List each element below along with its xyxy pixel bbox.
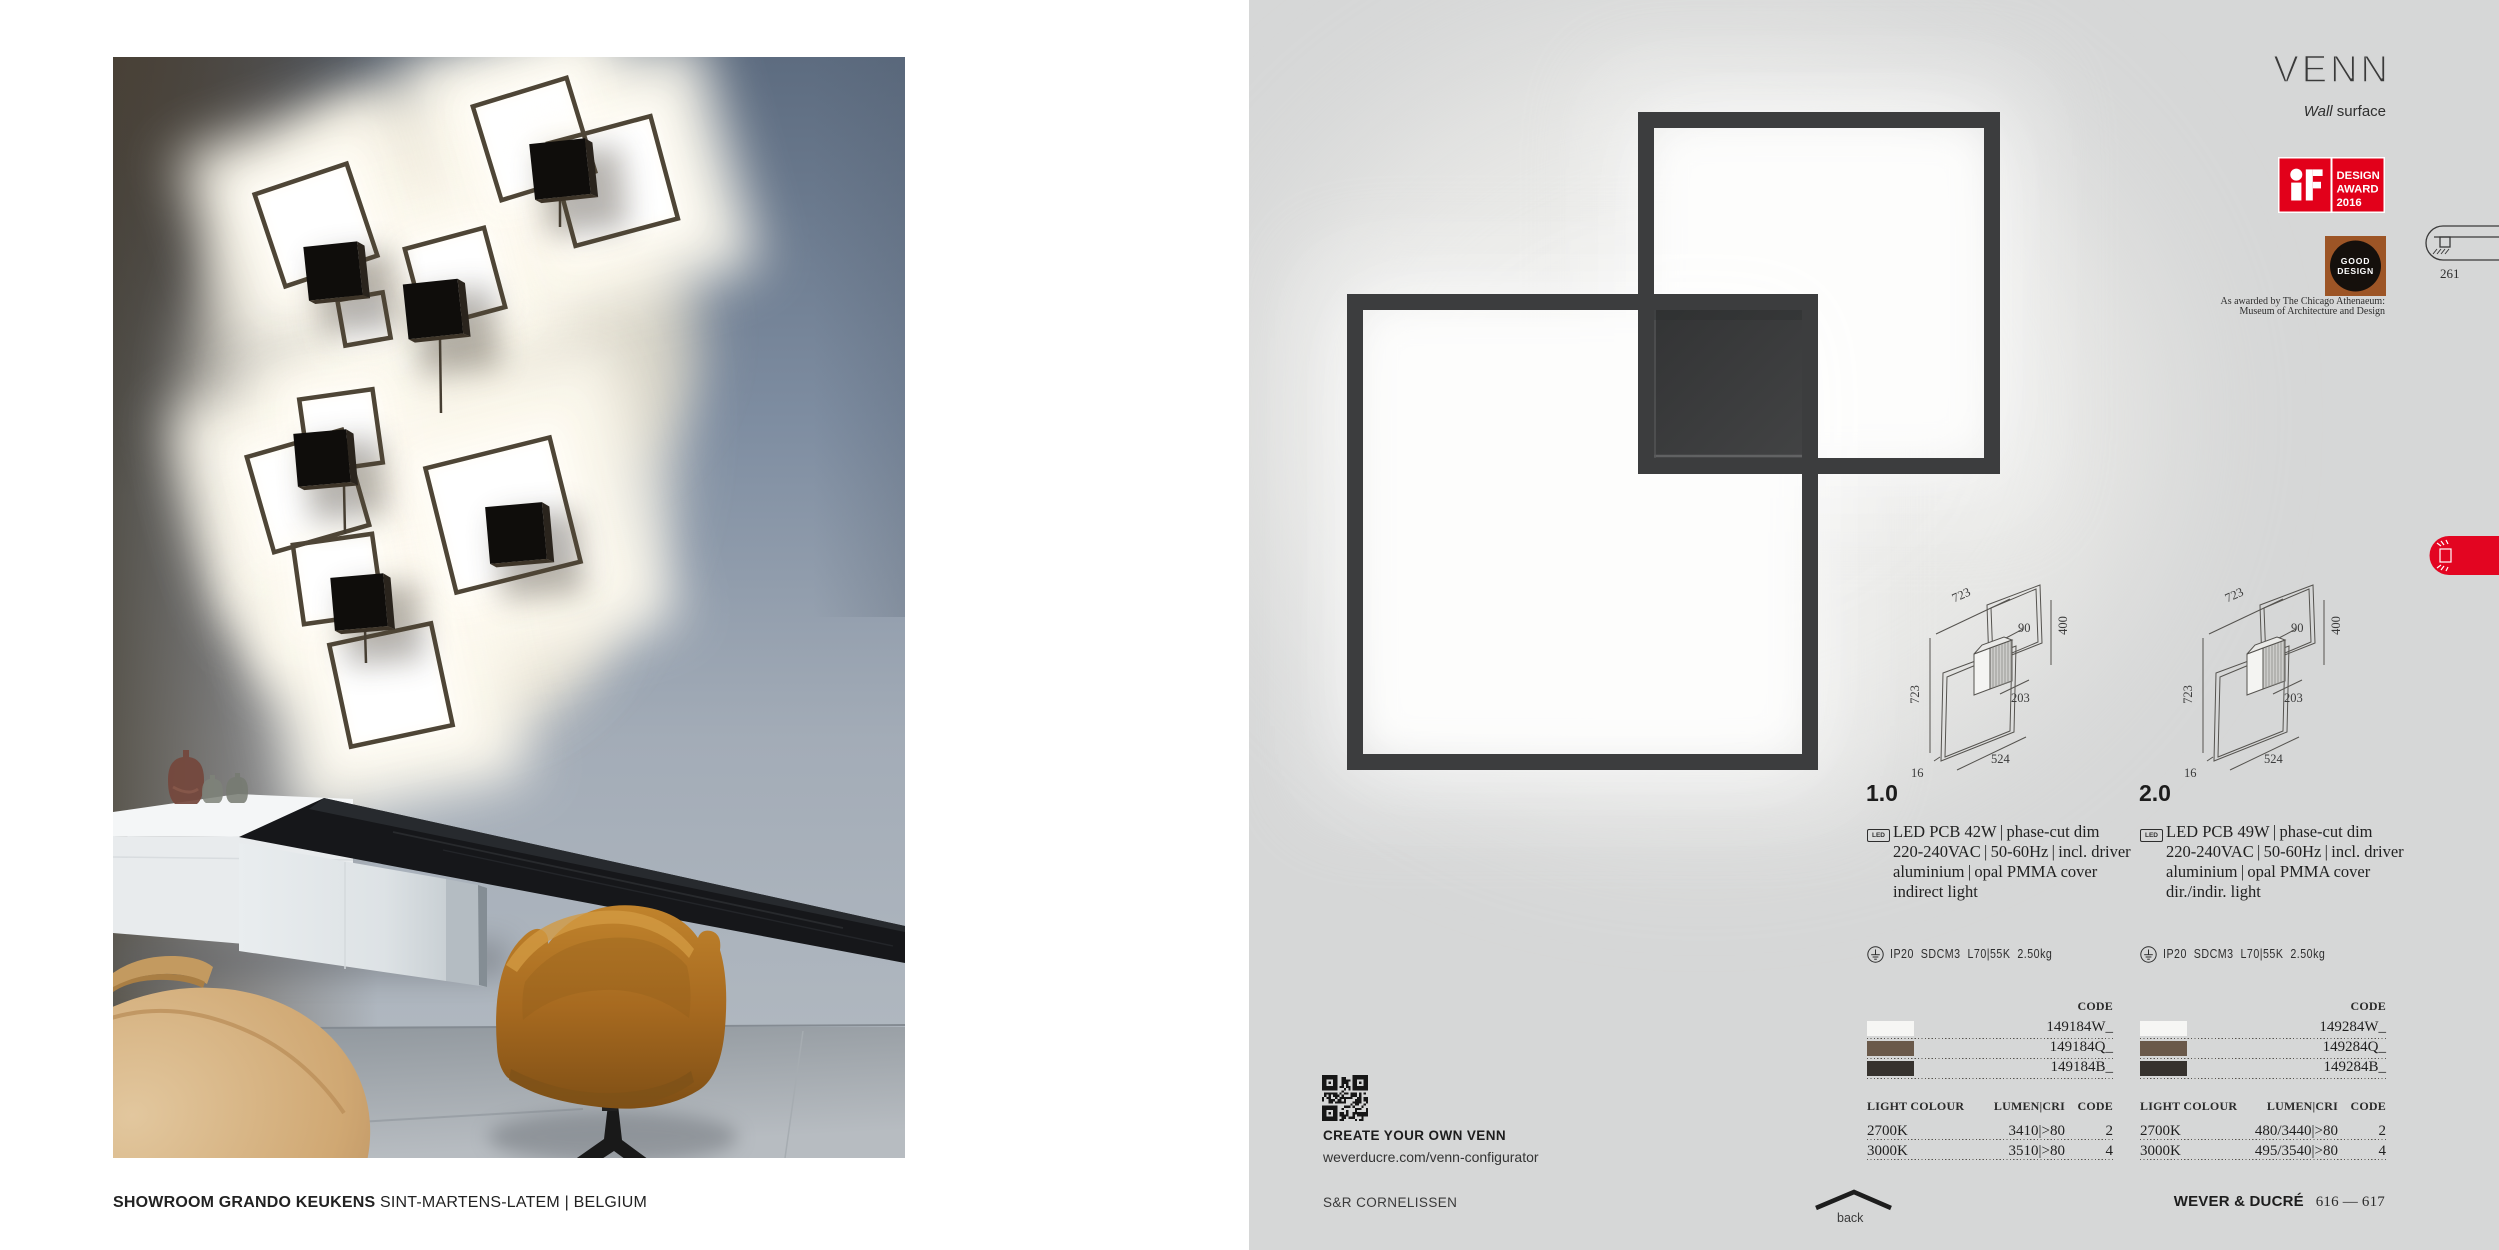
svg-text:DESIGN: DESIGN [2337,170,2380,182]
svg-text:GOOD: GOOD [2341,256,2370,266]
svg-text:DESIGN: DESIGN [2337,266,2374,276]
svg-text:2016: 2016 [2337,197,2362,209]
svg-text:AWARD: AWARD [2337,184,2379,196]
